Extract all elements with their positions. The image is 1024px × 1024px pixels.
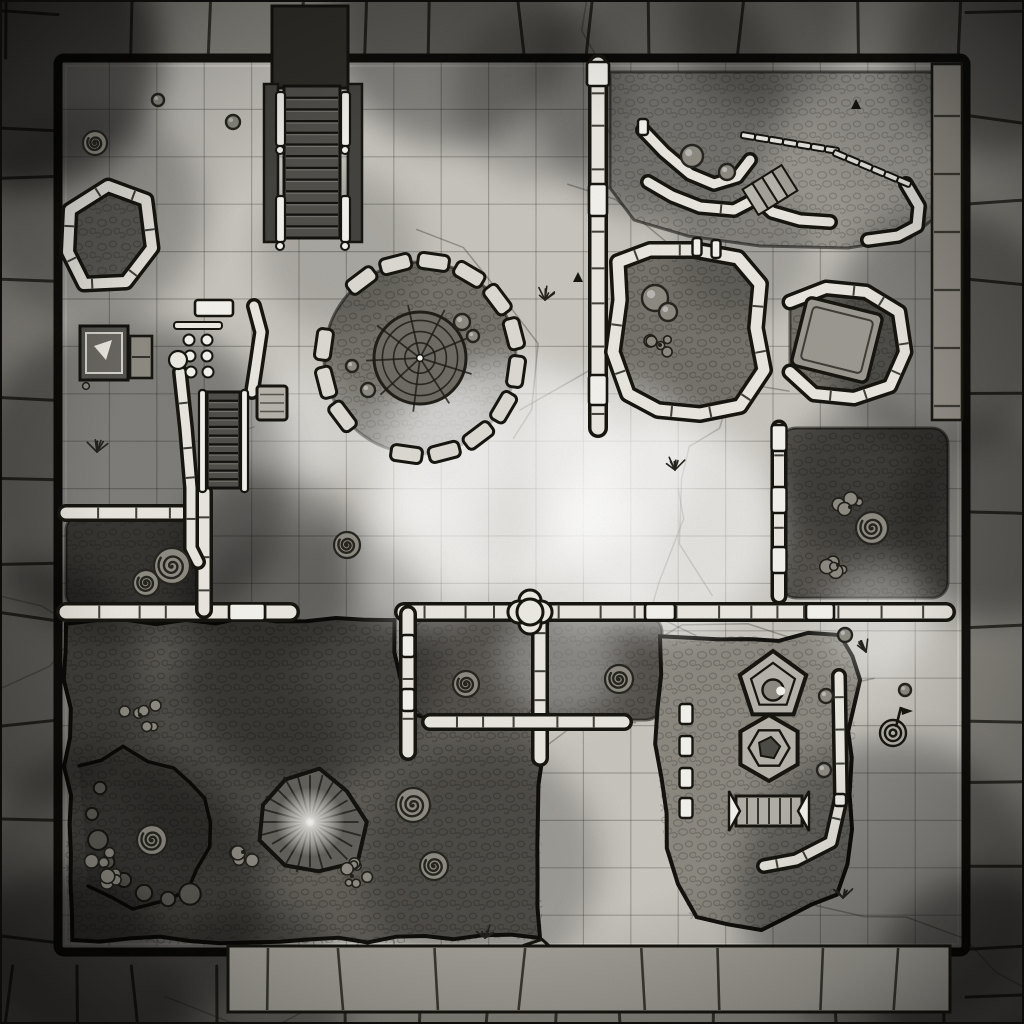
- atmosphere: [0, 0, 1024, 1024]
- dungeon-map: [0, 0, 1024, 1024]
- dungeon-map-drawing: [0, 0, 1024, 1024]
